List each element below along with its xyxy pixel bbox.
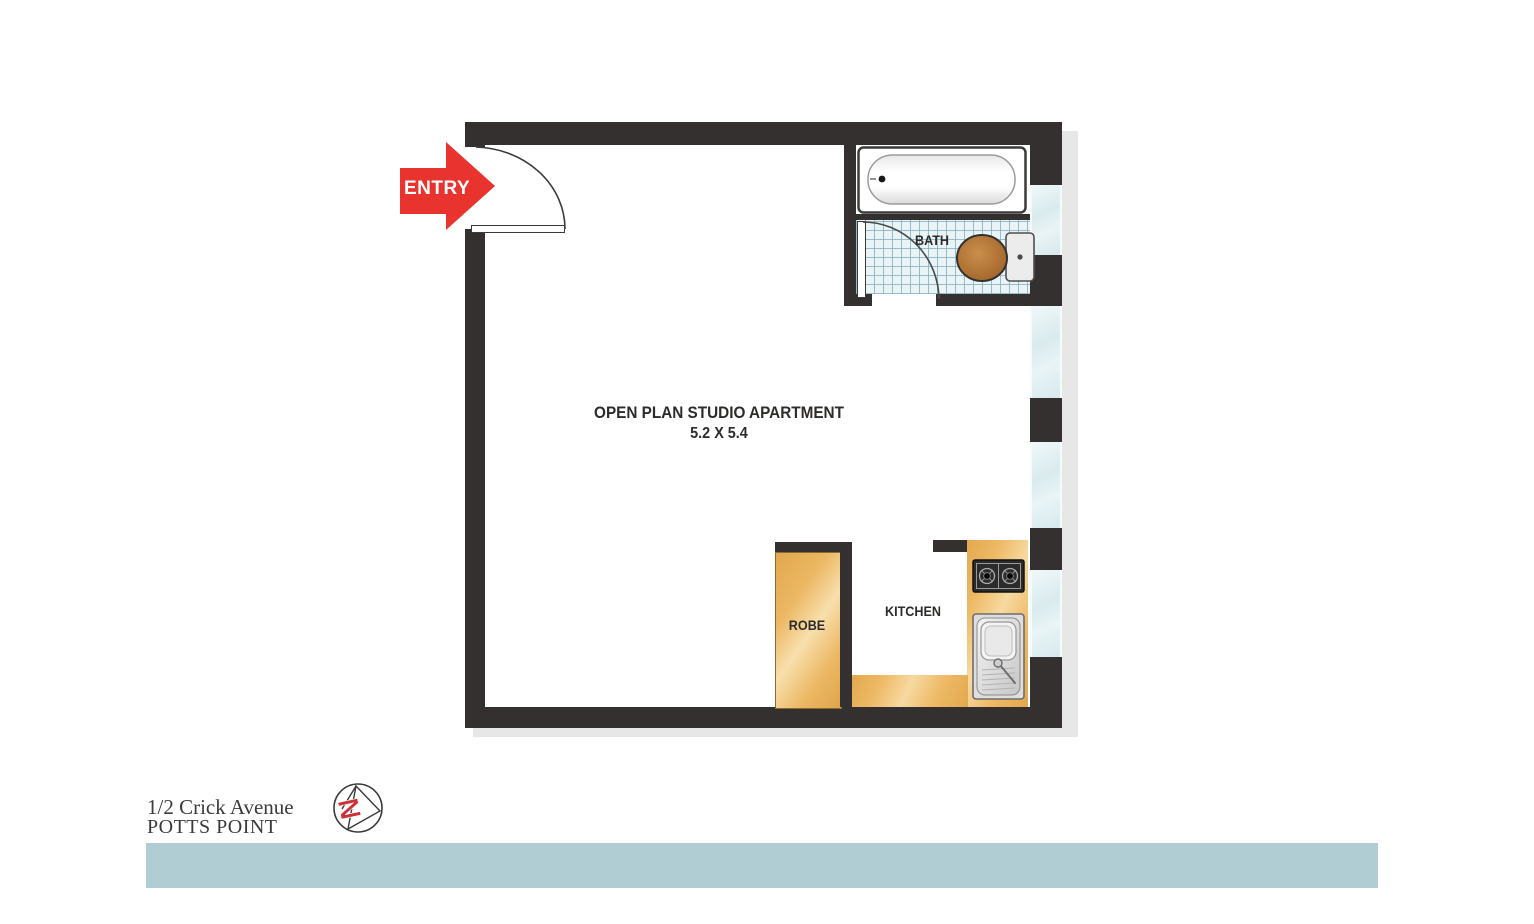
wall-right-seg3 (1030, 398, 1062, 442)
wall-right-seg1 (1030, 122, 1062, 185)
main-room-name: OPEN PLAN STUDIO APARTMENT (562, 403, 877, 423)
kitchen-counter-bottom (852, 675, 968, 707)
plan-shadow-right (1062, 131, 1078, 731)
wall-right-seg5 (1030, 657, 1062, 728)
robe-wall-right (840, 542, 852, 707)
floorplan-page: BATH KITCHE (0, 0, 1534, 924)
wall-left (465, 229, 485, 728)
kitchen-wall-stub (933, 540, 967, 552)
kitchen-label: KITCHEN (873, 603, 954, 619)
entry-arrow-text: ENTRY (404, 178, 470, 199)
bathtub-icon (857, 146, 1027, 214)
stove-icon (972, 559, 1025, 593)
bath-label: BATH (896, 232, 968, 248)
wall-right-seg4 (1030, 528, 1062, 570)
wall-top (465, 122, 1062, 145)
window-2 (1030, 306, 1062, 398)
footer-address-line2: POTTS POINT (147, 816, 278, 839)
main-room-label: OPEN PLAN STUDIO APARTMENT 5.2 X 5.4 (562, 403, 877, 443)
main-room-dimensions: 5.2 X 5.4 (562, 425, 877, 443)
north-compass-icon: N (332, 782, 384, 834)
bath-door-swing-arc (860, 218, 946, 304)
window-4 (1030, 570, 1062, 657)
robe-label: ROBE (776, 617, 839, 633)
bath-wall-left (844, 145, 856, 306)
window-3 (1030, 442, 1062, 528)
plan-shadow-bottom (473, 728, 1078, 737)
footer-accent-bar (146, 843, 1378, 888)
entry-arrow-icon: ENTRY (400, 142, 495, 230)
wall-bottom (465, 707, 1062, 728)
bath-wall-bottom (936, 294, 1030, 306)
toilet-icon (956, 231, 1036, 284)
sink-icon (972, 613, 1025, 700)
